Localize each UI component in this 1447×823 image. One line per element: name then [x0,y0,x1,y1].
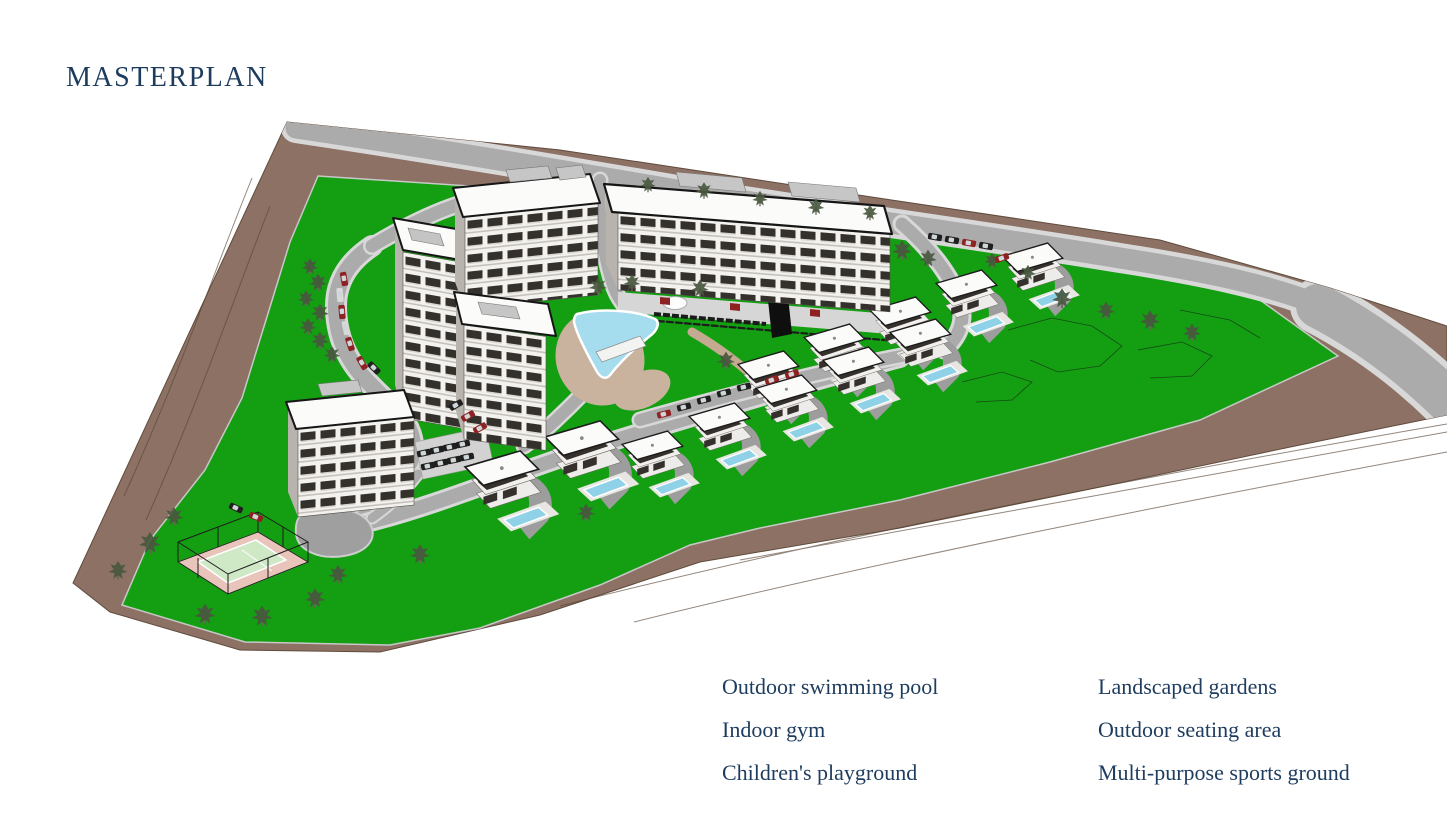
amenity-item: Outdoor swimming pool [722,676,938,698]
apartment-building-4 [454,292,556,451]
car [338,305,346,320]
car [336,288,344,303]
amenity-item: Indoor gym [722,719,938,741]
amenity-item: Outdoor seating area [1098,719,1350,741]
amenity-item: Multi-purpose sports ground [1098,762,1350,784]
apartment-building-2 [453,165,600,309]
brochure-page: MASTERPLAN [0,0,1447,823]
amenity-item: Children's playground [722,762,938,784]
amenity-item: Landscaped gardens [1098,676,1350,698]
apartment-building-5 [286,380,414,517]
amenities-column-right: Landscaped gardens Outdoor seating area … [1098,676,1350,805]
amenities-column-left: Outdoor swimming pool Indoor gym Childre… [722,676,938,805]
